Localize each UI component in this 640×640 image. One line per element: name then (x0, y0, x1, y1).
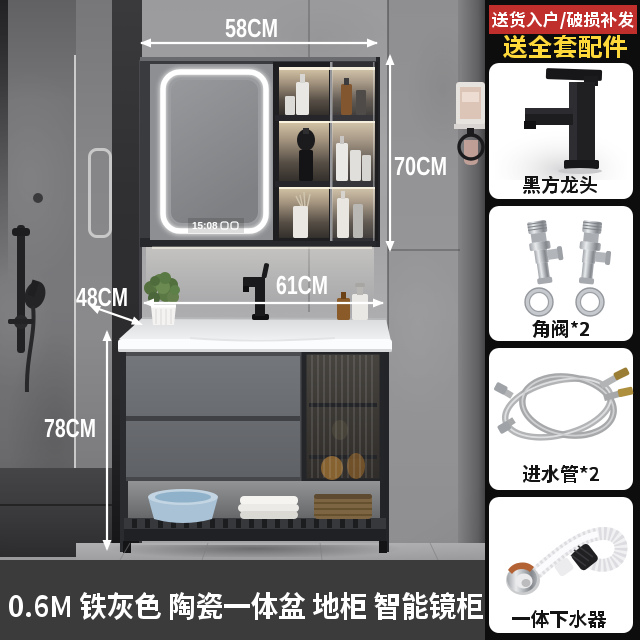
svg-text:15:08: 15:08 (192, 221, 218, 232)
svg-text:48CM: 48CM (76, 282, 128, 312)
svg-text:61CM: 61CM (276, 270, 328, 300)
svg-text:58CM: 58CM (225, 13, 278, 43)
svg-text:78CM: 78CM (44, 413, 96, 443)
svg-text:70CM: 70CM (394, 151, 447, 181)
